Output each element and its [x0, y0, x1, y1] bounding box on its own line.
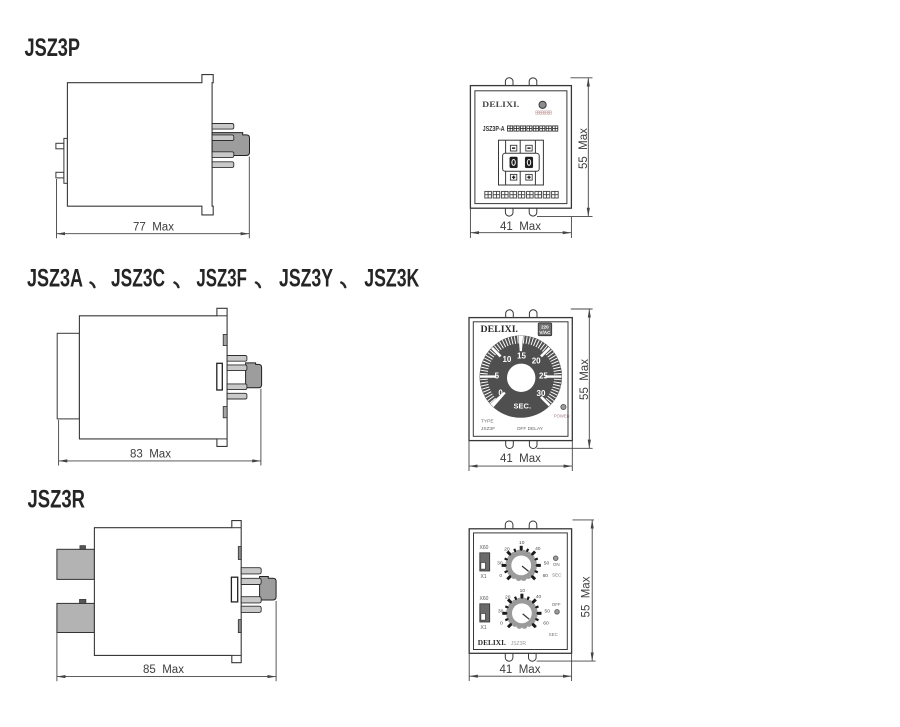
svg-text:15: 15 [517, 352, 526, 361]
svg-text:JSZ3Y: JSZ3Y [279, 266, 333, 293]
svg-text:20: 20 [532, 357, 541, 366]
svg-text:5: 5 [495, 372, 500, 381]
svg-text:25: 25 [539, 372, 548, 381]
svg-text:55 Max: 55 Max [579, 359, 591, 400]
svg-text:0: 0 [500, 621, 503, 627]
svg-text:SEC.: SEC. [514, 401, 532, 410]
svg-text:JSZ3R: JSZ3R [28, 487, 86, 514]
svg-text:JSZ3F: JSZ3F [481, 426, 495, 432]
svg-text:JSZ3A: JSZ3A [27, 266, 83, 293]
svg-text:DELIXI.: DELIXI. [481, 324, 519, 334]
svg-text:83 Max: 83 Max [130, 449, 171, 461]
svg-text:OFF DELAY: OFF DELAY [517, 426, 544, 432]
svg-text:0: 0 [498, 389, 503, 398]
svg-text:POWER: POWER [554, 413, 570, 418]
svg-text:10: 10 [519, 540, 525, 546]
svg-text:30: 30 [497, 560, 503, 566]
svg-text:40: 40 [535, 546, 541, 552]
svg-text:ON: ON [553, 562, 560, 567]
svg-text:55 Max: 55 Max [581, 576, 593, 617]
svg-text:JSZ3P-A: JSZ3P-A [483, 126, 505, 133]
svg-text:SEC: SEC [552, 572, 562, 577]
svg-text:0: 0 [499, 573, 502, 579]
svg-text:30: 30 [498, 608, 504, 614]
svg-text:50: 50 [544, 560, 550, 566]
svg-text:OFF: OFF [552, 602, 561, 607]
svg-text:20: 20 [505, 594, 511, 600]
svg-text:JSZ3P: JSZ3P [25, 35, 81, 62]
svg-text:77 Max: 77 Max [133, 222, 174, 234]
svg-text:20: 20 [504, 546, 510, 552]
svg-text:X60: X60 [480, 596, 489, 602]
svg-text:30: 30 [537, 389, 546, 398]
svg-text:JSZ3F: JSZ3F [196, 266, 247, 293]
svg-text:41 Max: 41 Max [500, 221, 541, 233]
svg-text:V/AC: V/AC [539, 330, 551, 335]
svg-text:40: 40 [536, 594, 542, 600]
svg-text:41 Max: 41 Max [500, 664, 541, 676]
svg-text:10: 10 [502, 355, 511, 364]
svg-text:60: 60 [543, 573, 549, 579]
svg-text:X1: X1 [480, 625, 486, 631]
svg-text:TYPE: TYPE [481, 419, 494, 425]
svg-text:41 Max: 41 Max [500, 453, 541, 465]
svg-text:85 Max: 85 Max [143, 664, 184, 676]
svg-text:X1: X1 [480, 574, 486, 580]
svg-text:60: 60 [543, 621, 549, 627]
svg-text:55 Max: 55 Max [578, 128, 590, 169]
svg-text:50: 50 [544, 608, 550, 614]
svg-text:JSZ3K: JSZ3K [364, 266, 419, 293]
svg-text:DELIXI.: DELIXI. [478, 639, 506, 647]
svg-text:JSZ3R: JSZ3R [511, 641, 527, 647]
svg-text:X60: X60 [480, 545, 489, 551]
svg-text:JSZ3C: JSZ3C [111, 266, 165, 293]
svg-text:10: 10 [520, 588, 526, 594]
svg-text:DELIXI.: DELIXI. [482, 99, 519, 109]
svg-text:SEC: SEC [549, 632, 559, 637]
